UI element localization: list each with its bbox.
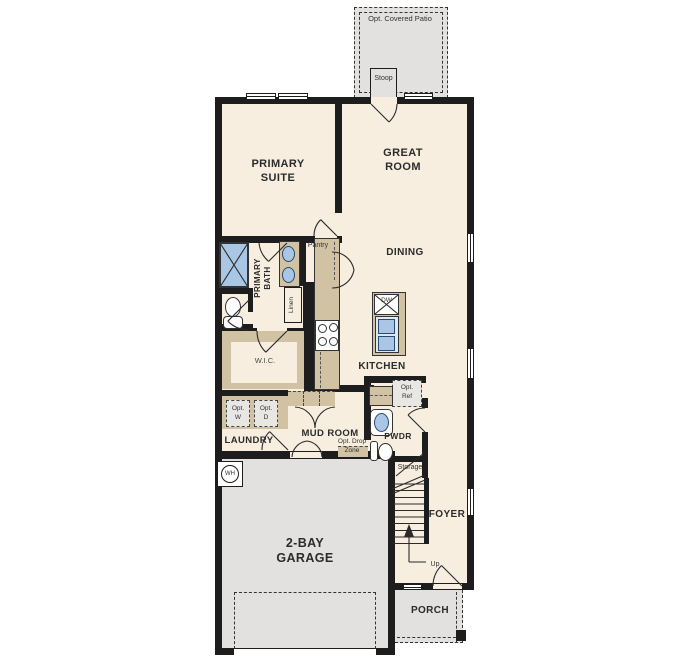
- garage-door-recess: [234, 592, 376, 649]
- stoop-area: [370, 68, 397, 100]
- toilet-primary-tank: [223, 316, 243, 329]
- opening-rear-door: [371, 97, 397, 104]
- window-foyer-front: [403, 584, 422, 590]
- room-label-dining: DINING: [381, 247, 429, 259]
- opt-washer-label: Opt. W: [226, 405, 250, 422]
- room-label-great-room: GREAT ROOM: [374, 146, 432, 174]
- opening-garage-vehicle-door: [234, 648, 376, 655]
- wall-wic-right: [304, 330, 314, 392]
- opening-front-door: [433, 584, 462, 589]
- vanity-sink-2: [282, 267, 295, 283]
- range-burner-1: [318, 324, 327, 333]
- wall-right: [467, 97, 474, 590]
- porch-dash-inner-h: [397, 637, 461, 638]
- label-up: Up: [426, 561, 444, 570]
- porch-column: [456, 630, 466, 641]
- room-label-primary-suite: PRIMARY SUITE: [238, 157, 318, 185]
- vanity-sink-1: [282, 246, 295, 262]
- room-label-linen: Linen: [288, 289, 298, 321]
- range-burner-4: [329, 337, 338, 346]
- room-label-pantry: Pantry: [304, 242, 332, 251]
- room-label-pwdr: PWDR: [379, 430, 417, 442]
- mudroom-bench-divider-1: [303, 391, 304, 406]
- kitchen-counter-dash-upper: [334, 242, 335, 280]
- toilet-pwdr-bowl: [378, 443, 393, 461]
- room-label-wic: W.I.C.: [248, 357, 282, 366]
- label-opt-drop-zone: Opt. Drop Zone: [332, 438, 372, 455]
- label-opt-ref: Opt. Ref: [393, 384, 421, 401]
- room-label-garage: 2-BAY GARAGE: [255, 536, 355, 566]
- window-suite-1: [246, 93, 276, 100]
- room-label-kitchen: KITCHEN: [355, 361, 409, 373]
- wall-garage-bottom-left: [215, 648, 234, 655]
- window-foyer-right: [467, 488, 474, 516]
- wall-suite-greatroom: [335, 97, 342, 213]
- floor-plan: Opt. Covered Patio Stoop: [0, 0, 687, 661]
- range-burner-3: [318, 337, 327, 346]
- wall-left: [215, 97, 222, 655]
- window-suite-2: [278, 93, 308, 100]
- room-label-primary-bath: PRIMARY BATH: [253, 247, 275, 309]
- wall-pwdr-right-top: [422, 398, 428, 408]
- toilet-primary-bowl: [225, 297, 241, 317]
- room-label-laundry: LAUNDRY: [220, 435, 278, 447]
- room-label-porch: PORCH: [405, 605, 455, 617]
- kitchen-counter: [314, 238, 340, 390]
- window-greatroom-right: [467, 233, 474, 263]
- opening-garage-door-entry: [290, 452, 322, 458]
- wall-storage-top: [395, 456, 428, 462]
- mudroom-bench-divider-2: [319, 391, 320, 406]
- opt-dryer-label: Opt. D: [254, 405, 278, 422]
- island-sink-basin-2: [378, 336, 395, 351]
- range-burner-2: [329, 323, 338, 332]
- staircase: [393, 478, 424, 544]
- room-label-storage: Storage: [393, 464, 427, 473]
- mudroom-bench: [288, 391, 335, 406]
- kitchen-counter-dash-lower: [320, 352, 321, 388]
- water-heater-label: WH: [221, 470, 239, 479]
- stoop-label: Stoop: [370, 75, 397, 84]
- opt-covered-patio-label: Opt. Covered Patio: [352, 15, 448, 24]
- window-dining-right: [467, 348, 474, 379]
- window-greatroom-top: [404, 93, 433, 100]
- dishwasher-label: DW: [374, 297, 399, 306]
- pwdr-hall-counter: [369, 386, 393, 406]
- room-label-foyer: FOYER: [428, 509, 466, 521]
- island-sink-basin-1: [378, 319, 395, 334]
- shower-fixture: [219, 242, 249, 288]
- pwdr-hall-counter-dash: [370, 395, 392, 396]
